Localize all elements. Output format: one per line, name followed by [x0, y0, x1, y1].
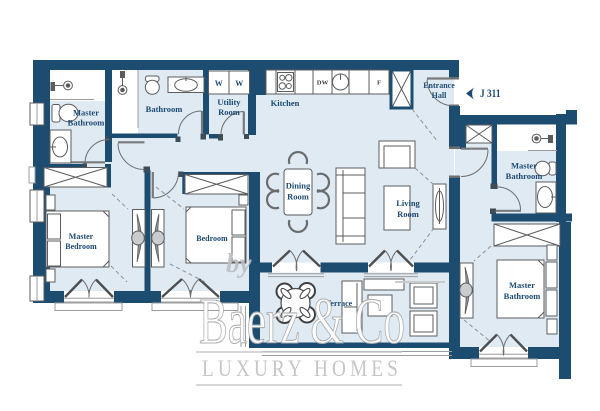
svg-text:Hall: Hall [432, 91, 447, 100]
svg-text:Living: Living [396, 198, 420, 208]
svg-text:Utility: Utility [217, 97, 241, 107]
svg-text:Master: Master [73, 108, 99, 118]
svg-text:Bathroom: Bathroom [146, 104, 183, 114]
svg-text:Bathroom: Bathroom [504, 291, 541, 301]
svg-text:Bedroom: Bedroom [196, 234, 228, 243]
svg-text:Master: Master [511, 161, 537, 171]
svg-text:Bathroom: Bathroom [506, 171, 543, 181]
svg-text:Kitchen: Kitchen [271, 98, 300, 108]
svg-text:F: F [377, 80, 381, 87]
svg-text:Bedroom: Bedroom [65, 242, 97, 251]
svg-text:Dining: Dining [286, 181, 311, 191]
svg-text:W: W [215, 79, 223, 88]
svg-text:Room: Room [397, 209, 419, 219]
svg-text:DW: DW [317, 80, 329, 87]
svg-text:Room: Room [218, 107, 240, 117]
svg-text:Baerz & Co: Baerz & Co [199, 285, 405, 358]
svg-text:Bathroom: Bathroom [68, 118, 105, 128]
svg-text:LUXURY HOMES: LUXURY HOMES [202, 356, 402, 382]
svg-text:Master: Master [509, 280, 535, 290]
svg-text:Master: Master [69, 232, 94, 241]
svg-text:J 311: J 311 [480, 88, 501, 100]
svg-text:Room: Room [287, 192, 309, 202]
svg-text:by: by [226, 248, 253, 278]
svg-text:W: W [235, 79, 243, 88]
svg-text:Entrance: Entrance [423, 81, 455, 90]
